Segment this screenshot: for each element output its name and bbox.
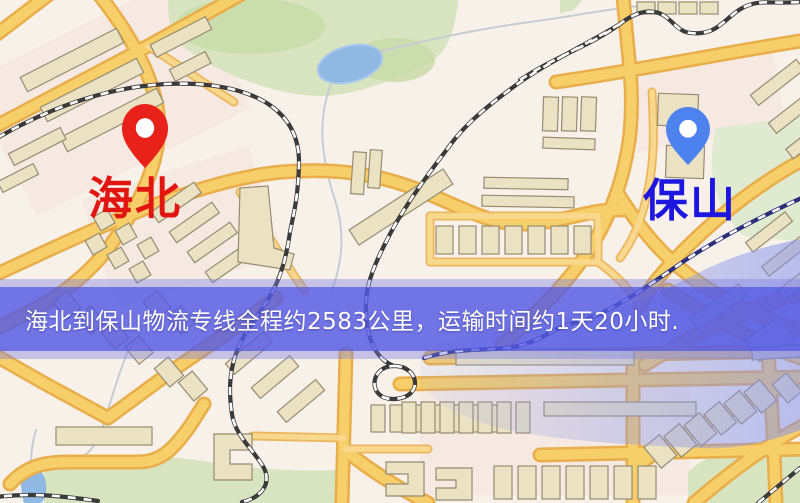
origin-label: 海北 bbox=[88, 176, 182, 221]
route-info-banner: 海北到保山物流专线全程约2583公里，运输时间约1天20小时. bbox=[0, 287, 800, 351]
origin-marker[interactable] bbox=[122, 104, 168, 172]
route-info-text: 海北到保山物流专线全程约2583公里，运输时间约1天20小时. bbox=[0, 302, 679, 336]
origin-pin-icon bbox=[122, 104, 168, 168]
destination-pin-icon bbox=[666, 107, 710, 165]
map: 海北到保山物流专线全程约2583公里，运输时间约1天20小时. 海北 保山 bbox=[0, 0, 800, 503]
destination-label: 保山 bbox=[643, 178, 737, 223]
destination-marker[interactable] bbox=[666, 107, 710, 169]
map-canvas bbox=[0, 0, 800, 503]
